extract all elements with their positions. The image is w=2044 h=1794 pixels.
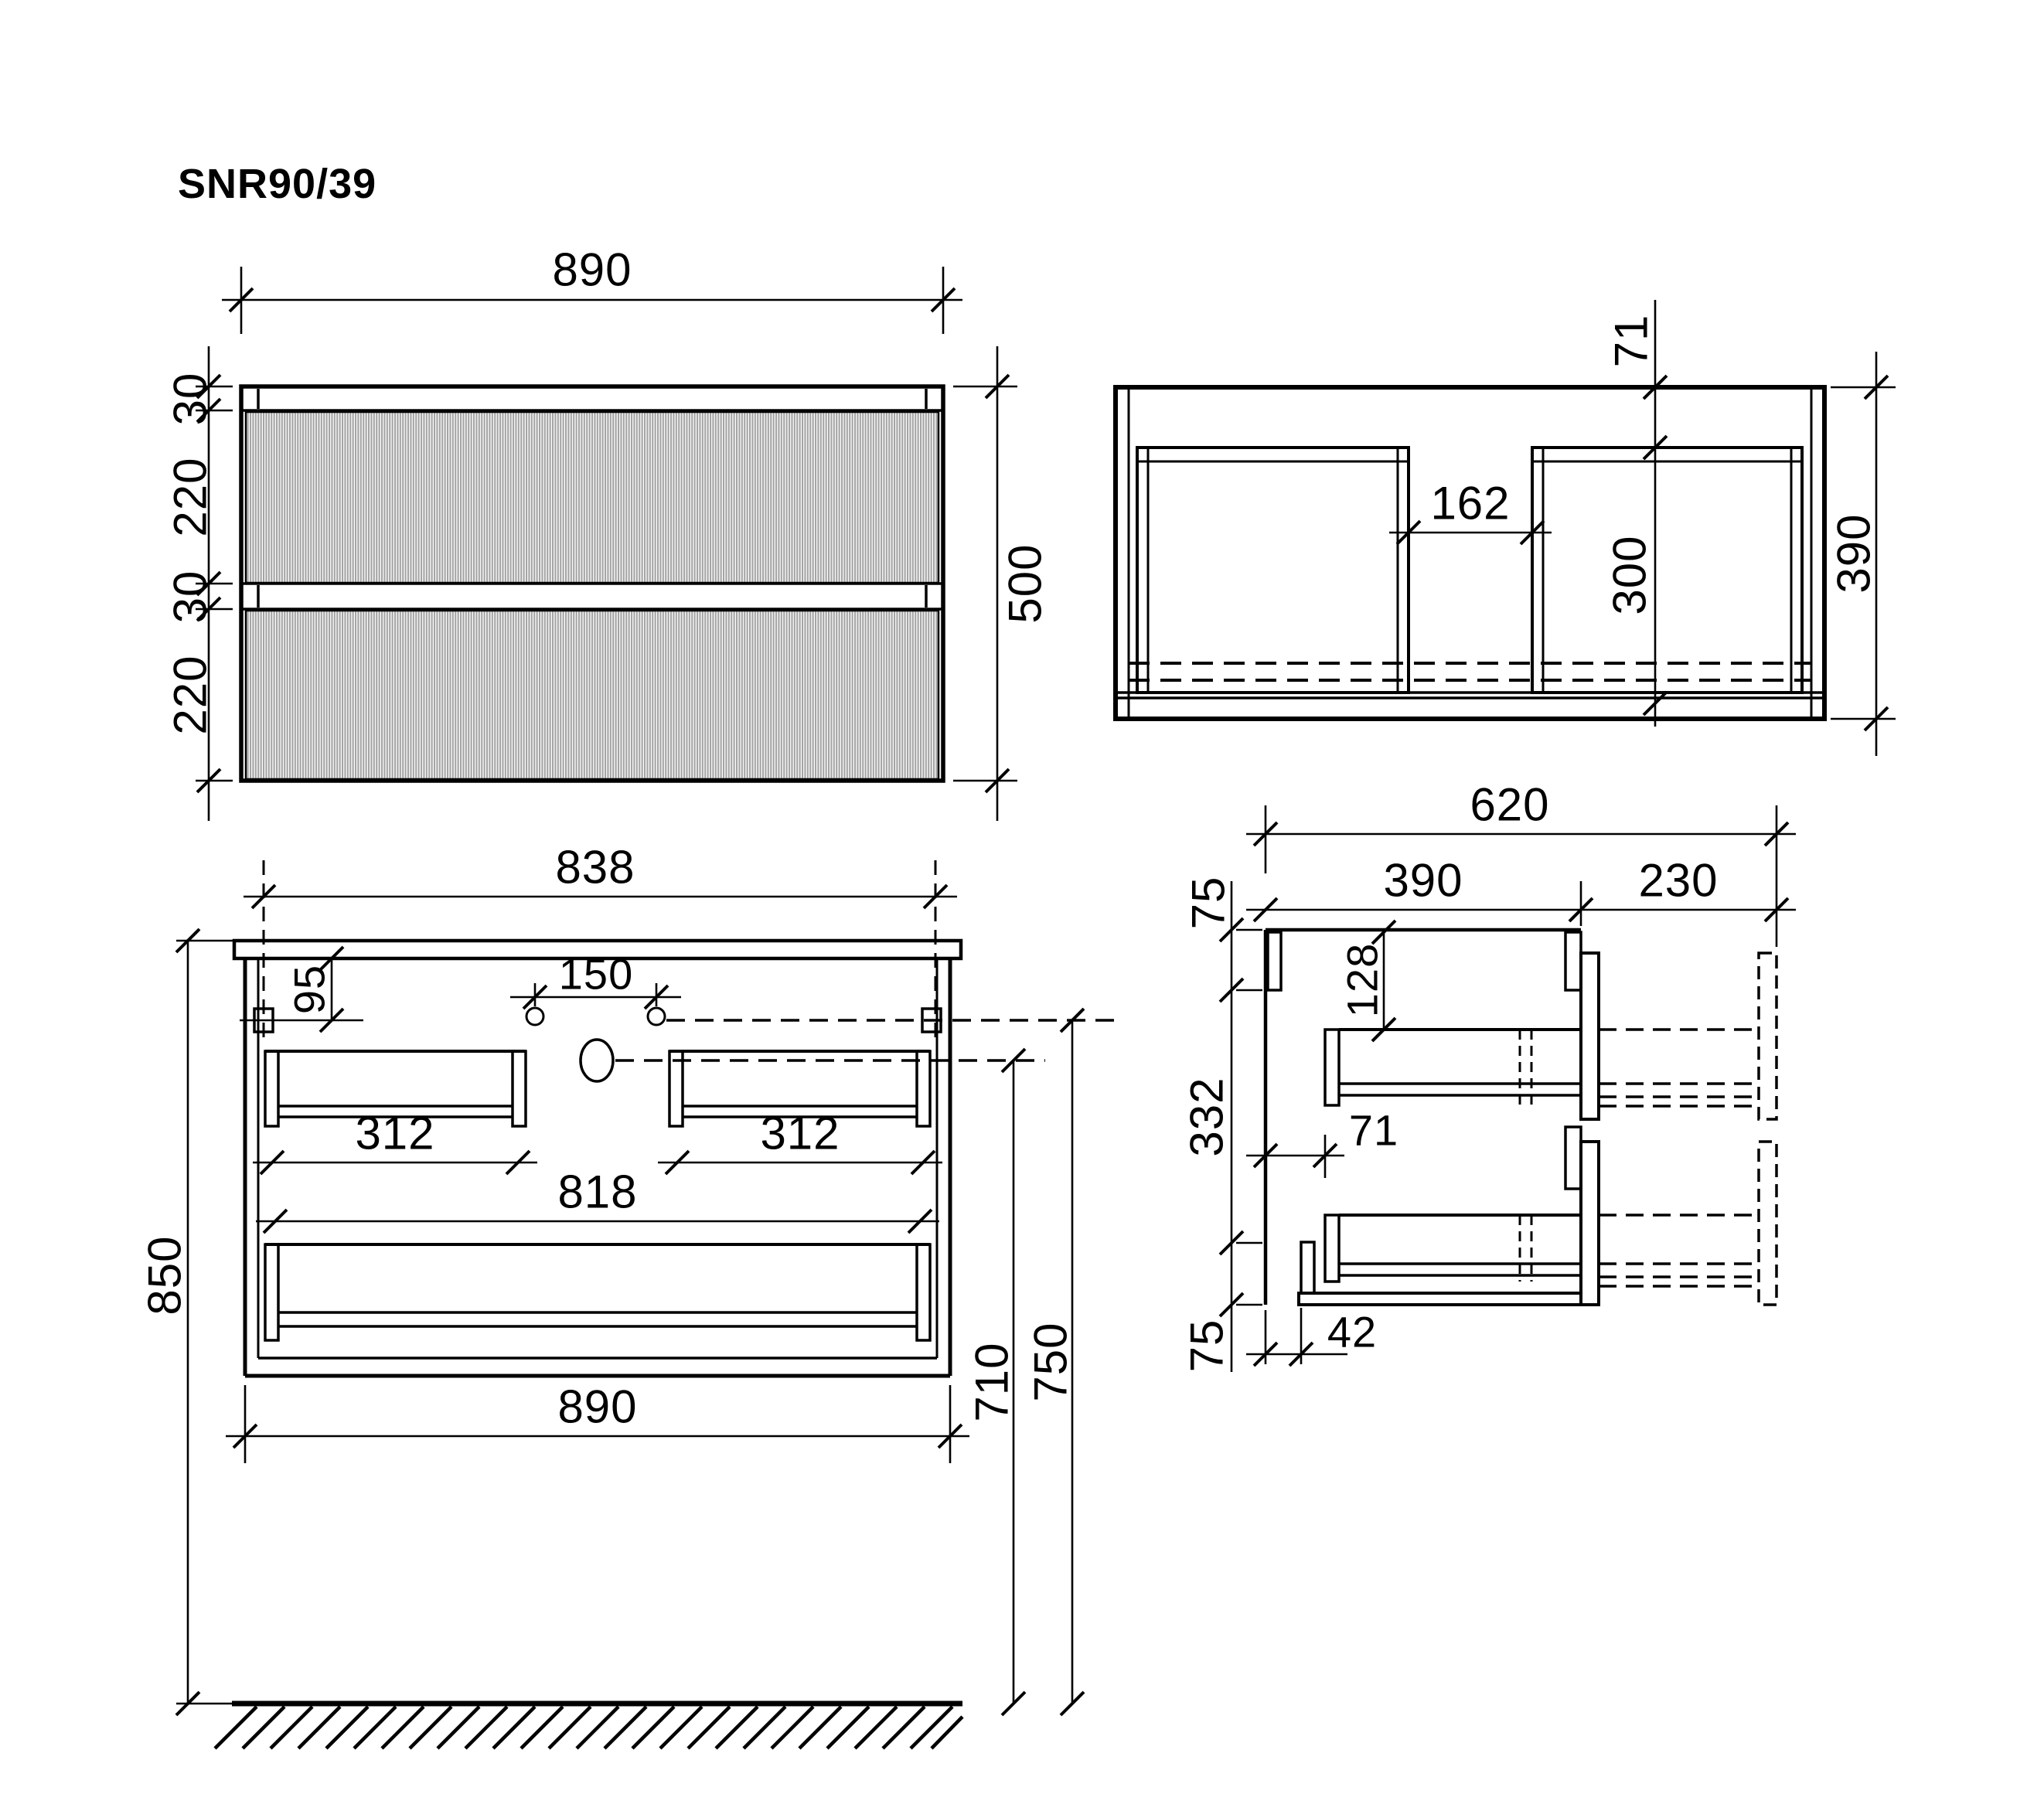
dim-drain-to-floor: 710	[966, 1060, 1026, 1715]
side-dim-drawer-top-offset-label: 128	[1338, 943, 1387, 1017]
side-upper-slide-dashes	[1599, 1030, 1759, 1106]
dim-bottom-inner-width-label: 818	[557, 1166, 637, 1218]
front-dim-toprail-label: 30	[165, 373, 216, 426]
plan-dim-gap: 162	[1389, 478, 1552, 545]
side-dim-extended-depth-label: 620	[1470, 779, 1549, 831]
side-dim-depth-label: 390	[1383, 855, 1463, 907]
front-dim-left-chain: 30 220 30 220	[165, 346, 233, 821]
front-dim-width: 890	[222, 244, 962, 335]
dim-drain-to-floor-label: 710	[966, 1342, 1018, 1421]
dim-drawer-inner-left-label: 312	[355, 1108, 434, 1159]
plan-dim-gap-label: 162	[1430, 478, 1510, 529]
dim-total-width: 890	[226, 1381, 969, 1464]
front-dim-height-label: 500	[1000, 543, 1051, 623]
side-dim-extension-label: 230	[1638, 855, 1718, 907]
side-back-top-rail	[1268, 932, 1281, 990]
front-lower-drawer-fluted-panel	[246, 611, 939, 779]
plan-dim-back-offset-label: 71	[1606, 315, 1657, 368]
plan-view: 162 71 300 390	[1116, 300, 1896, 756]
side-upper-drawer-box	[1325, 1030, 1581, 1105]
drawing-sheet: SNR90/39 890	[0, 0, 2044, 1794]
plan-dim-depth-label: 390	[1828, 513, 1880, 593]
side-dim-back-clearance: 71	[1246, 1106, 1398, 1179]
plan-right-cutout	[1532, 448, 1802, 693]
side-upper-drawer-front	[1581, 953, 1599, 1119]
front-dim-lower-drawer-label: 220	[165, 655, 216, 734]
side-lower-drawer-front	[1581, 1142, 1599, 1305]
dim-faucet-spacing-label: 150	[559, 950, 633, 999]
side-dim-bottom-back-offset: 42	[1246, 1308, 1377, 1367]
front-view: 890 30 220 30 220 500	[165, 244, 1051, 822]
side-lower-drawer-box	[1325, 1215, 1581, 1282]
dim-drawer-inner-right-label: 312	[760, 1108, 840, 1159]
drain-hole	[581, 1040, 613, 1081]
side-back-bottom-rail	[1301, 1242, 1314, 1293]
side-dim-left-chain: 75 332 75	[1181, 877, 1263, 1373]
dim-bracket-to-floor: 750	[1025, 1020, 1085, 1715]
front-dim-width-label: 890	[552, 244, 632, 296]
side-dim-bottom-back-offset-label: 42	[1327, 1308, 1377, 1357]
front-dim-midrail-label: 30	[165, 570, 216, 624]
dim-countertop-to-floor-label: 850	[139, 1235, 191, 1315]
side-dim-middle-label: 332	[1181, 1077, 1233, 1156]
side-dim-depth-extension: 390 230	[1246, 855, 1796, 927]
side-dim-back-clearance-label: 71	[1349, 1106, 1398, 1155]
bottom-front-view: 838 95 150	[139, 842, 1123, 1749]
front-dim-height: 500	[953, 346, 1051, 821]
front-upper-drawer-fluted-panel	[246, 412, 939, 583]
drawing-title: SNR90/39	[178, 161, 376, 207]
dim-countertop-to-floor: 850	[139, 929, 237, 1715]
dim-total-width-label: 890	[557, 1381, 637, 1433]
dim-bracket-to-floor-label: 750	[1025, 1322, 1077, 1401]
side-bottom-panel	[1299, 1293, 1581, 1305]
side-lower-front-extended-dashed	[1759, 1142, 1777, 1305]
side-front-top-rail	[1565, 932, 1581, 990]
side-upper-front-extended-dashed	[1759, 953, 1777, 1119]
bottom-drawer-box	[265, 1244, 930, 1340]
side-dim-drawer-top-offset: 128	[1338, 921, 1396, 1041]
dim-bottom-inner-width: 818	[256, 1166, 939, 1234]
side-lower-slide-dashes	[1599, 1215, 1759, 1286]
faucet-holes: 150	[510, 950, 681, 1026]
plan-outline	[1116, 387, 1824, 719]
plan-left-cutout	[1137, 448, 1409, 693]
side-view: 620 390 230 75 332 75	[1181, 779, 1797, 1373]
front-dim-upper-drawer-label: 220	[165, 457, 216, 536]
floor-hatch	[215, 1704, 962, 1748]
side-dim-top-rail-label: 75	[1183, 877, 1235, 930]
side-dim-bottom-rail-label: 75	[1181, 1319, 1233, 1373]
dim-bracket-span-label: 838	[555, 842, 635, 894]
plan-dim-depth: 390	[1828, 352, 1896, 756]
side-front-mid-rail	[1565, 1127, 1581, 1189]
plan-dim-cutout-depth-label: 300	[1604, 535, 1656, 614]
dim-bracket-drop-label: 95	[285, 965, 334, 1014]
